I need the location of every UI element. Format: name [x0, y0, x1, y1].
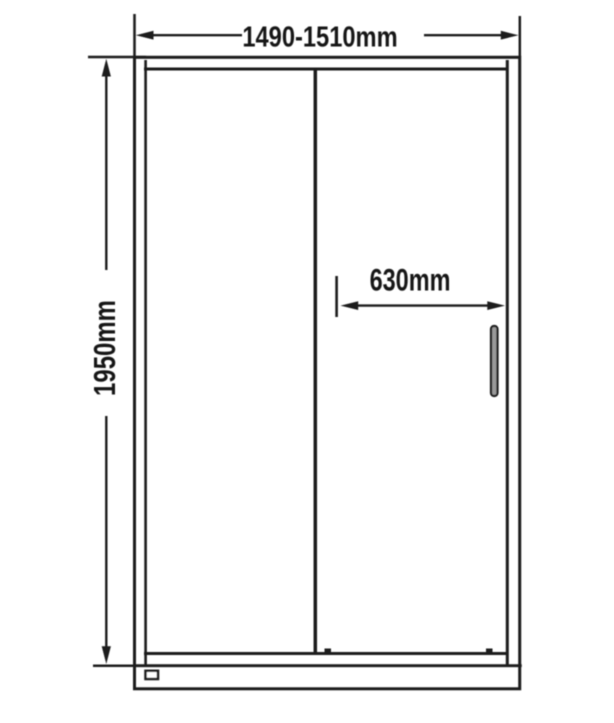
svg-text:630mm: 630mm [370, 262, 451, 297]
svg-text:1950mm: 1950mm [87, 300, 122, 396]
svg-text:1490-1510mm: 1490-1510mm [242, 20, 397, 53]
